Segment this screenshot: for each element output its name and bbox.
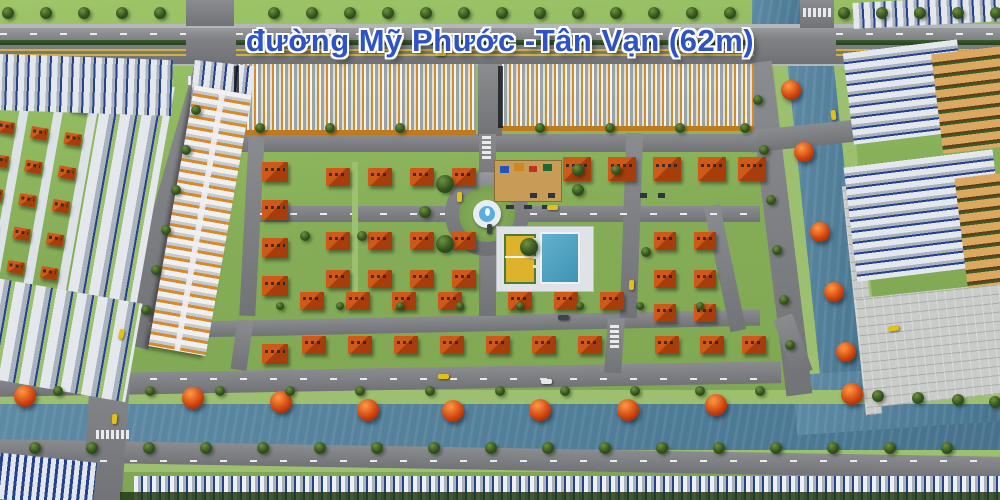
villa-house — [654, 304, 676, 322]
green-tree — [542, 442, 554, 454]
villa-house — [654, 232, 676, 250]
green-tree — [456, 302, 464, 310]
car — [628, 280, 633, 290]
villa-house — [738, 157, 766, 181]
green-tree — [610, 7, 622, 19]
crosswalk — [111, 430, 114, 439]
red-tree — [781, 80, 801, 100]
play-equipment — [543, 164, 552, 171]
green-tree — [838, 7, 850, 19]
crosswalk — [121, 430, 124, 439]
lane-marking — [0, 49, 186, 51]
shophouse-base — [238, 130, 476, 135]
red-tree — [705, 394, 727, 416]
green-tree — [200, 442, 212, 454]
shophouse-row — [502, 64, 754, 128]
red-tree — [529, 399, 551, 421]
villa-house — [698, 157, 726, 181]
car — [558, 315, 569, 320]
villa-house — [486, 336, 510, 354]
crosswalk — [482, 156, 491, 159]
green-tree — [336, 302, 344, 310]
green-tree — [766, 195, 776, 205]
green-tree — [371, 442, 383, 454]
crosswalk — [106, 430, 109, 439]
parked-car — [524, 205, 532, 209]
green-tree — [990, 7, 1000, 19]
road-name-label: đường Mỹ Phước -Tân Vạn (62m) — [246, 22, 754, 59]
parked-car — [658, 193, 665, 198]
green-tree — [436, 175, 454, 193]
green-tree — [396, 302, 404, 310]
lane-marking — [30, 378, 760, 380]
crosswalk — [610, 335, 619, 338]
crosswalk — [610, 325, 619, 328]
crosswalk — [126, 430, 129, 439]
villa-house — [6, 260, 25, 275]
crosswalk — [610, 330, 619, 333]
villa-house — [368, 270, 392, 288]
green-tree — [141, 305, 151, 315]
green-tree — [425, 386, 435, 396]
green-tree — [255, 123, 265, 133]
townhouse-row — [0, 54, 173, 116]
green-tree — [116, 7, 128, 19]
villa-house — [368, 232, 392, 250]
villa-house — [532, 336, 556, 354]
car — [487, 224, 492, 234]
villa-house — [410, 270, 434, 288]
parked-car — [548, 193, 555, 198]
villa-house — [262, 238, 288, 258]
villa-house — [262, 200, 288, 220]
villa-house — [326, 168, 350, 186]
green-tree — [952, 7, 964, 19]
play-equipment — [500, 166, 509, 173]
green-tree — [713, 442, 725, 454]
crosswalk — [96, 430, 99, 439]
green-tree — [770, 442, 782, 454]
car — [111, 414, 117, 424]
villa-house — [654, 270, 676, 288]
villa-house — [452, 232, 476, 250]
green-tree — [740, 123, 750, 133]
green-tree — [428, 442, 440, 454]
green-tree — [779, 295, 789, 305]
red-tree — [617, 399, 639, 421]
green-tree — [419, 206, 431, 218]
green-tree — [872, 390, 884, 402]
crosswalk — [813, 8, 816, 17]
green-tree — [605, 123, 615, 133]
car — [438, 374, 449, 379]
villa-house — [440, 336, 464, 354]
shophouse-row — [238, 64, 476, 132]
green-tree — [306, 7, 318, 19]
green-tree — [535, 123, 545, 133]
green-tree — [314, 442, 326, 454]
crosswalk — [823, 8, 826, 17]
hedge — [120, 492, 1000, 500]
green-tree — [268, 7, 280, 19]
green-tree — [382, 7, 394, 19]
crosswalk — [101, 430, 104, 439]
townhouse-row — [931, 46, 1000, 154]
crosswalk — [818, 8, 821, 17]
villa-house — [300, 292, 324, 310]
green-tree — [215, 386, 225, 396]
green-tree — [151, 265, 161, 275]
lounger — [533, 265, 539, 268]
green-tree — [572, 7, 584, 19]
red-tree — [836, 342, 856, 362]
lane-marking — [836, 33, 1000, 35]
green-tree — [772, 245, 782, 255]
crosswalk — [482, 146, 491, 149]
villa-house — [694, 270, 716, 288]
crosswalk — [610, 340, 619, 343]
car — [457, 192, 462, 202]
villa-house — [262, 344, 288, 364]
green-tree — [686, 7, 698, 19]
villa-house — [348, 336, 372, 354]
red-tree — [841, 383, 863, 405]
play-equipment — [529, 166, 537, 172]
green-tree — [641, 247, 651, 257]
shadow — [498, 66, 503, 128]
green-tree — [355, 386, 365, 396]
villa-house — [452, 270, 476, 288]
car — [541, 379, 552, 384]
villa-house — [554, 292, 578, 310]
crosswalk — [828, 8, 831, 17]
green-tree — [2, 7, 14, 19]
villa-house — [0, 120, 15, 135]
villa-house — [410, 168, 434, 186]
red-tree — [182, 387, 204, 409]
green-tree — [458, 7, 470, 19]
green-tree — [560, 386, 570, 396]
villa-house — [57, 165, 76, 180]
green-tree — [534, 7, 546, 19]
villa-house — [63, 132, 82, 147]
green-tree — [941, 442, 953, 454]
villa-house — [326, 232, 350, 250]
lane-marking — [10, 460, 990, 462]
green-tree — [78, 7, 90, 19]
villa-house — [394, 336, 418, 354]
crosswalk — [482, 151, 491, 154]
green-tree — [344, 7, 356, 19]
green-tree — [161, 225, 171, 235]
green-tree — [675, 123, 685, 133]
green-tree — [285, 386, 295, 396]
pond — [752, 0, 806, 24]
red-tree — [810, 222, 830, 242]
townhouse-row — [954, 172, 1000, 288]
green-tree — [86, 442, 98, 454]
villa-house — [30, 126, 49, 141]
villa-house — [655, 336, 679, 354]
green-tree — [145, 386, 155, 396]
villa-house — [262, 276, 288, 296]
green-tree — [648, 7, 660, 19]
green-tree — [785, 340, 795, 350]
green-tree — [520, 238, 538, 256]
villa-house — [0, 154, 9, 169]
green-tree — [485, 442, 497, 454]
green-tree — [357, 231, 367, 241]
green-tree — [656, 442, 668, 454]
crosswalk — [116, 430, 119, 439]
green-tree — [40, 7, 52, 19]
green-tree — [912, 392, 924, 404]
green-tree — [436, 235, 454, 253]
car — [887, 325, 899, 331]
green-tree — [53, 386, 63, 396]
road — [239, 134, 265, 317]
red-tree — [442, 400, 464, 422]
green-tree — [300, 231, 310, 241]
green-tree — [276, 302, 284, 310]
green-tree — [325, 123, 335, 133]
red-tree — [357, 399, 379, 421]
green-tree — [257, 442, 269, 454]
green-tree — [599, 442, 611, 454]
red-tree — [824, 282, 844, 302]
parked-car — [530, 193, 537, 198]
red-tree — [14, 385, 36, 407]
green-tree — [191, 105, 201, 115]
crosswalk — [803, 8, 806, 17]
crosswalk — [188, 76, 191, 85]
fountain-spray — [485, 208, 490, 216]
green-tree — [952, 394, 964, 406]
green-tree — [395, 123, 405, 133]
villa-house — [694, 232, 716, 250]
lane-marking — [0, 33, 186, 35]
green-tree — [914, 7, 926, 19]
villa-house — [12, 226, 31, 241]
villa-house — [410, 232, 434, 250]
green-tree — [724, 7, 736, 19]
median-hedge — [0, 40, 186, 45]
green-tree — [576, 302, 584, 310]
parked-car — [506, 205, 514, 209]
villa-house — [262, 162, 288, 182]
swimming-pool — [540, 232, 580, 284]
green-tree — [572, 184, 584, 196]
crosswalk — [808, 8, 811, 17]
lounger — [533, 256, 539, 259]
car — [830, 110, 836, 121]
villa-house — [40, 266, 59, 281]
green-tree — [181, 145, 191, 155]
villa-house — [578, 336, 602, 354]
car — [547, 205, 558, 210]
villa-house — [18, 193, 37, 208]
villa-house — [302, 336, 326, 354]
green-tree — [827, 442, 839, 454]
court-line — [505, 256, 533, 258]
crosswalk — [482, 141, 491, 144]
green-tree — [989, 396, 1000, 408]
green-tree — [516, 302, 524, 310]
green-tree — [171, 185, 181, 195]
road — [186, 0, 234, 26]
villa-house — [700, 336, 724, 354]
parked-car — [640, 193, 647, 198]
green-tree — [143, 442, 155, 454]
green-tree — [496, 7, 508, 19]
villa-house — [600, 292, 624, 310]
green-tree — [876, 7, 888, 19]
villa-house — [346, 292, 370, 310]
green-tree — [884, 442, 896, 454]
green-tree — [630, 386, 640, 396]
villa-house — [653, 157, 681, 181]
villa-house — [326, 270, 350, 288]
green-tree — [695, 386, 705, 396]
green-tree — [154, 7, 166, 19]
red-tree — [794, 142, 814, 162]
crosswalk — [610, 345, 619, 348]
villa-house — [24, 159, 43, 174]
villa-house — [52, 199, 71, 214]
masterplan-render: đường Mỹ Phước -Tân Vạn (62m) — [0, 0, 1000, 500]
green-tree — [420, 7, 432, 19]
villa-house — [742, 336, 766, 354]
play-equipment — [514, 163, 524, 171]
green-tree — [696, 302, 704, 310]
green-tree — [753, 95, 763, 105]
green-tree — [755, 386, 765, 396]
green-tree — [495, 386, 505, 396]
green-tree — [611, 165, 621, 175]
green-tree — [759, 145, 769, 155]
villa-house — [368, 168, 392, 186]
green-tree — [572, 164, 584, 176]
villa-house — [452, 168, 476, 186]
villa-house — [46, 232, 65, 247]
green-tree — [29, 442, 41, 454]
green-tree — [636, 302, 644, 310]
crosswalk — [482, 136, 491, 139]
